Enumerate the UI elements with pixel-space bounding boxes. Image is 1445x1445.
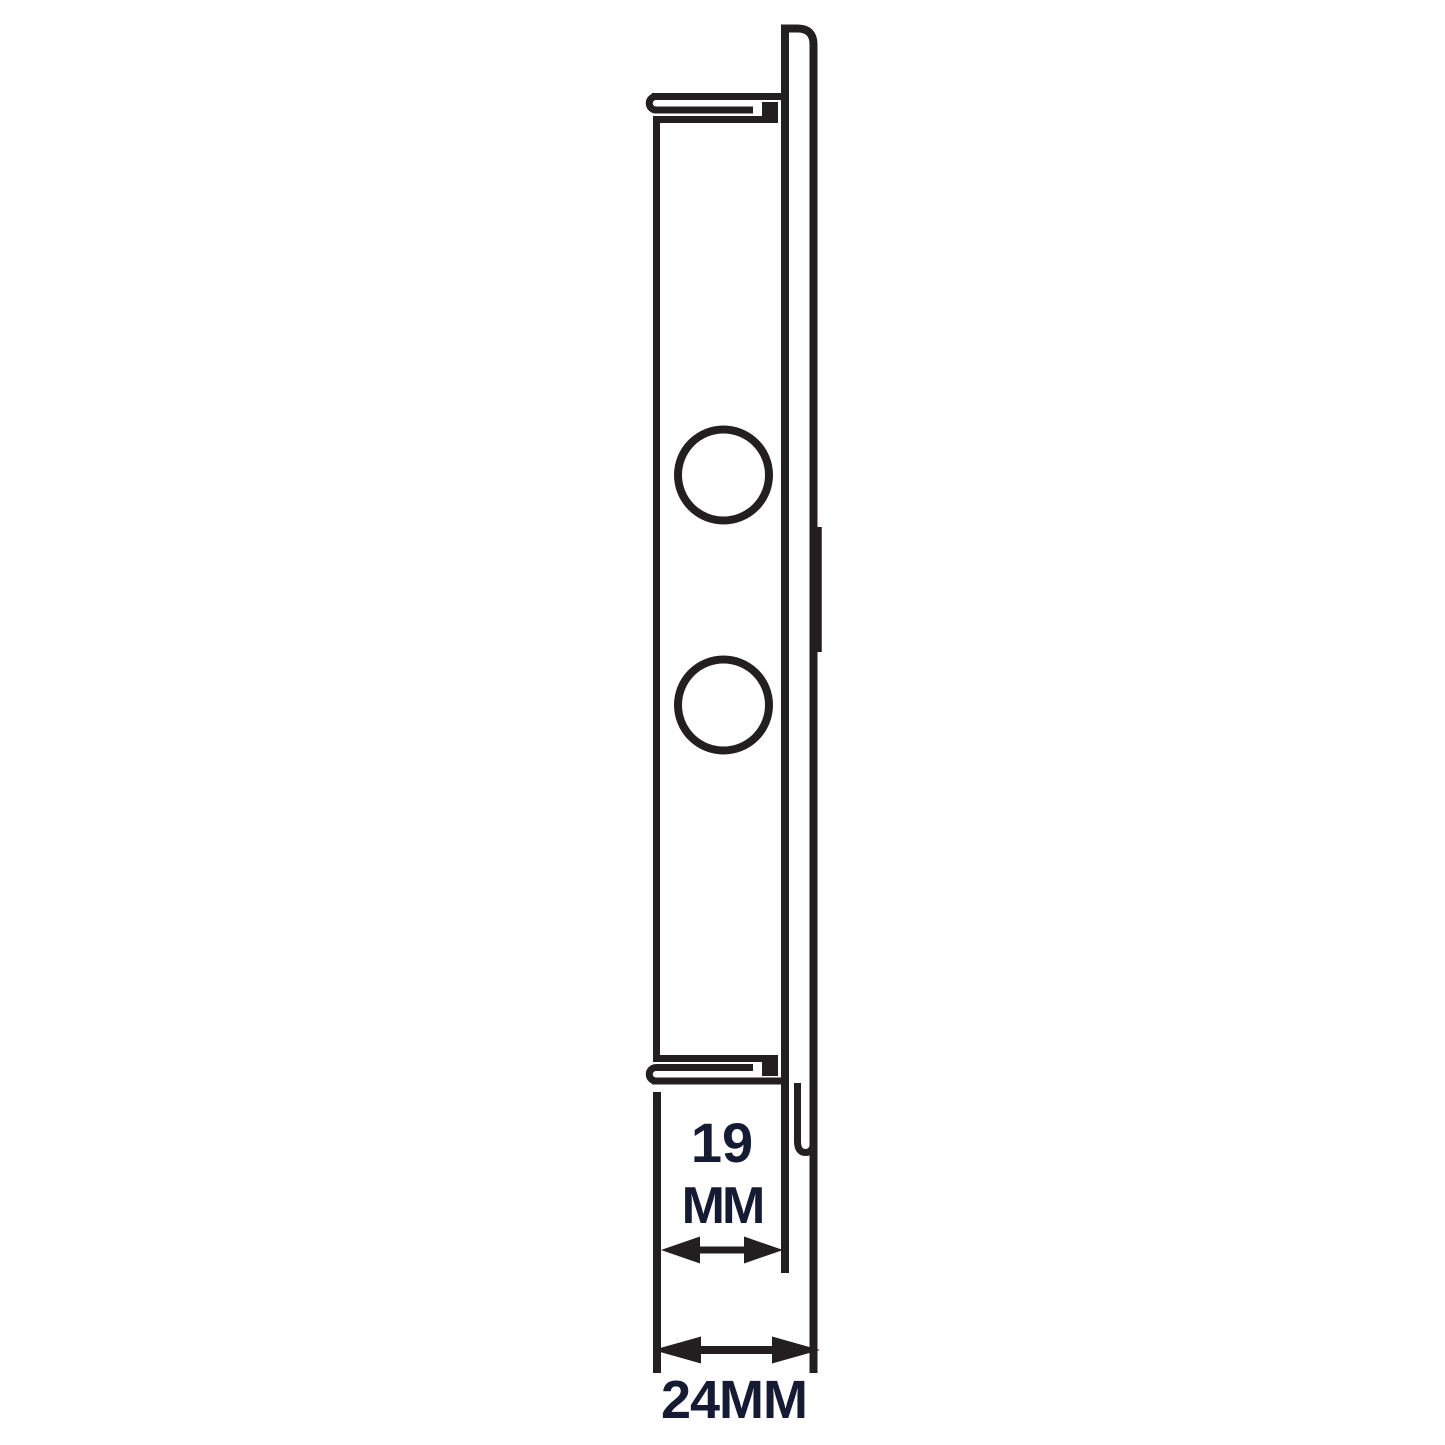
technical-drawing: 19 MM 24MM bbox=[0, 0, 1445, 1445]
top-clip-right-block bbox=[762, 102, 778, 117]
dimension-19-arrowhead-right bbox=[744, 1237, 783, 1264]
top-clip-left-bend bbox=[649, 97, 656, 111]
faceplate-profile bbox=[785, 29, 814, 1374]
dimension-19-value: 19 bbox=[691, 1111, 753, 1174]
page: 19 MM 24MM bbox=[0, 0, 1445, 1445]
top-mounting-clip bbox=[649, 97, 789, 117]
screw-hole-bottom bbox=[678, 660, 769, 751]
screw-hole-top bbox=[678, 430, 769, 521]
dimension-24mm: 24MM bbox=[653, 1337, 820, 1431]
dimension-24-label: 24MM bbox=[661, 1370, 807, 1430]
bottom-clip-right-block bbox=[762, 1062, 778, 1077]
duct-body bbox=[657, 120, 779, 1059]
bottom-mounting-clip bbox=[649, 1062, 789, 1082]
bottom-clip-left-bend bbox=[649, 1068, 656, 1082]
dimension-19-unit: MM bbox=[682, 1177, 763, 1235]
dimension-19-arrowhead-left bbox=[661, 1237, 700, 1264]
dimension-19mm: 19 MM bbox=[661, 1111, 783, 1264]
